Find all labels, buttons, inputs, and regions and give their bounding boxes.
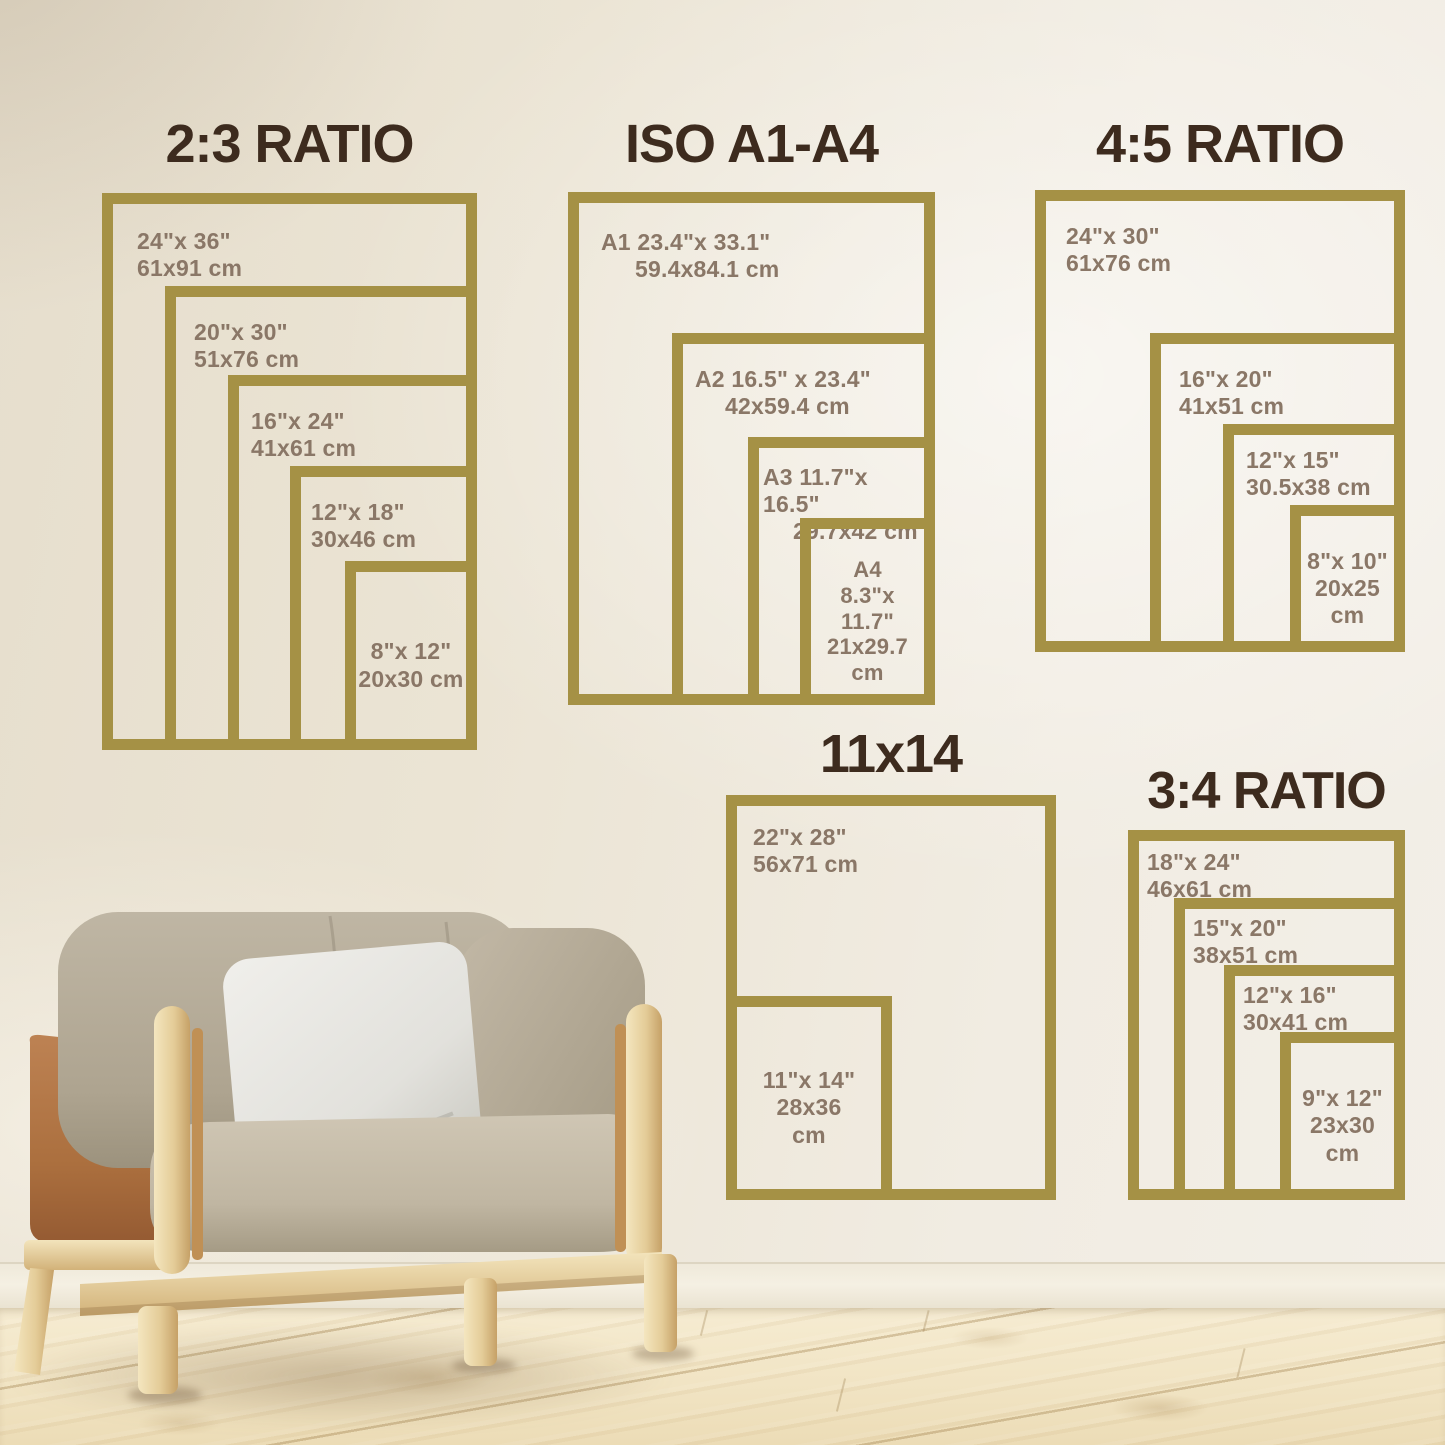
plank-joint — [836, 1378, 846, 1411]
bent-slat-right — [615, 1024, 626, 1252]
seat-cushion — [150, 1114, 656, 1252]
frame-label: 9"x 12" 23x30 cm — [1302, 1085, 1383, 1166]
frame-label: 24"x 30" 61x76 cm — [1066, 223, 1171, 277]
wood-post-right — [626, 1004, 662, 1266]
frame-label: 20"x 30" 51x76 cm — [194, 319, 299, 373]
frame-8x12: 8"x 12" 20x30 cm — [345, 561, 477, 750]
frame-label: 15"x 20" 38x51 cm — [1193, 915, 1298, 969]
section-title: 3:4 RATIO — [1108, 764, 1425, 819]
frame-label: 24"x 36" 61x91 cm — [137, 228, 242, 282]
plank-joint — [1236, 1348, 1245, 1378]
section-title: 11x14 — [726, 726, 1056, 783]
frame-label: A2 16.5" x 23.4"42x59.4 cm — [695, 366, 871, 420]
section-title: 4:5 RATIO — [1035, 116, 1405, 173]
plank-joint — [922, 1310, 929, 1332]
frame-label: 12"x 15" 30.5x38 cm — [1246, 447, 1371, 501]
section-title: 2:3 RATIO — [102, 116, 477, 173]
frame-label: 16"x 24" 41x61 cm — [251, 408, 356, 462]
chair-leg-right — [644, 1254, 677, 1352]
chair-leg-middle — [464, 1278, 497, 1366]
chair-leg-front-left — [138, 1306, 178, 1394]
bent-slat-left — [192, 1028, 203, 1260]
frame-label: 8"x 10" 20x25 cm — [1307, 548, 1388, 629]
frame-label: 12"x 16" 30x41 cm — [1243, 982, 1348, 1036]
section-title: ISO A1-A4 — [568, 116, 935, 173]
chair-leg-back-left — [14, 1268, 54, 1375]
frame-label: 18"x 24" 46x61 cm — [1147, 849, 1252, 903]
frame-label: A1 23.4"x 33.1"59.4x84.1 cm — [601, 229, 779, 283]
wood-rail-left — [24, 1240, 166, 1270]
armchair — [0, 878, 690, 1445]
frame-label: 8"x 12" 20x30 cm — [358, 638, 463, 692]
wood-post-left — [154, 1006, 190, 1274]
frame-9x12: 9"x 12" 23x30 cm — [1280, 1032, 1405, 1200]
frame-label: A4 8.3"x 11.7" 21x29.7 cm — [811, 557, 924, 687]
plank-joint — [700, 1310, 708, 1336]
frame-11x14: 11"x 14" 28x36 cm — [726, 996, 892, 1200]
frame-8x10: 8"x 10" 20x25 cm — [1290, 505, 1405, 652]
frame-a4: A4 8.3"x 11.7" 21x29.7 cm — [800, 518, 935, 705]
frame-label: 16"x 20" 41x51 cm — [1179, 366, 1284, 420]
poster-size-guide-mockup: { "colors": { "frame_gold": "#a59145", "… — [0, 0, 1445, 1445]
frame-label: 22"x 28" 56x71 cm — [753, 824, 858, 878]
frame-label: 11"x 14" 28x36 cm — [763, 1067, 856, 1148]
frame-label: 12"x 18" 30x46 cm — [311, 499, 416, 553]
